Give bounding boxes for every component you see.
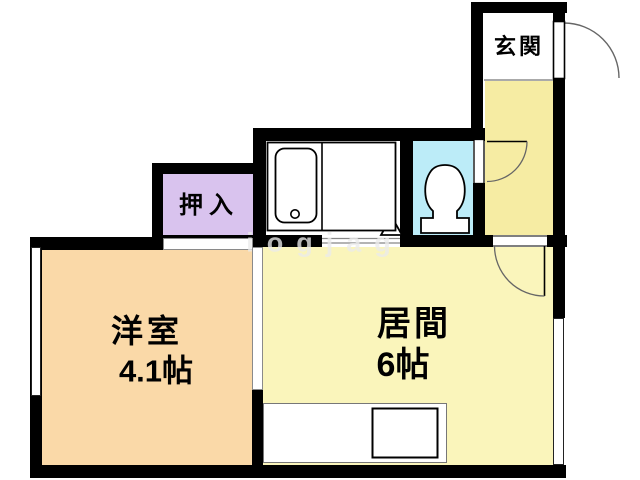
wall-bottom	[30, 465, 566, 478]
toilet-room-floor	[413, 141, 473, 235]
wall-hallwaydoor-right	[547, 235, 567, 247]
window-left	[31, 247, 41, 396]
western-room-label: 洋室	[111, 315, 183, 347]
kitchen-counter	[263, 403, 447, 463]
living-room-label: 居間	[377, 307, 451, 341]
wall-genkan-left	[471, 2, 483, 141]
wall-divider-lower	[252, 390, 263, 465]
wall-western-top	[30, 237, 163, 250]
hallway-floor	[485, 80, 553, 235]
entrance-door	[554, 22, 620, 79]
watermark-text: iogjag	[246, 228, 404, 259]
closet-sliding-door	[163, 238, 253, 250]
genkan-label: 玄関	[494, 36, 544, 58]
living-doorway	[493, 235, 547, 247]
room-divider-sliding-door	[252, 247, 263, 390]
closet-label: 押入	[179, 194, 239, 218]
bathroom-floor	[266, 141, 400, 235]
wall-closet-left	[152, 163, 163, 250]
living-room-size: 6帖	[377, 348, 430, 382]
window-right	[553, 318, 564, 465]
wall-bath-top	[253, 128, 485, 141]
wall-closet-top	[152, 163, 266, 174]
wall-under-toilet	[400, 235, 493, 247]
wall-right-upper	[553, 2, 565, 22]
floorplan-canvas: 玄関 押入 洋室 4.1帖 居間 6帖 iogjag	[0, 0, 640, 480]
wall-right-mid	[553, 78, 565, 318]
western-room-size: 4.1帖	[119, 356, 193, 387]
